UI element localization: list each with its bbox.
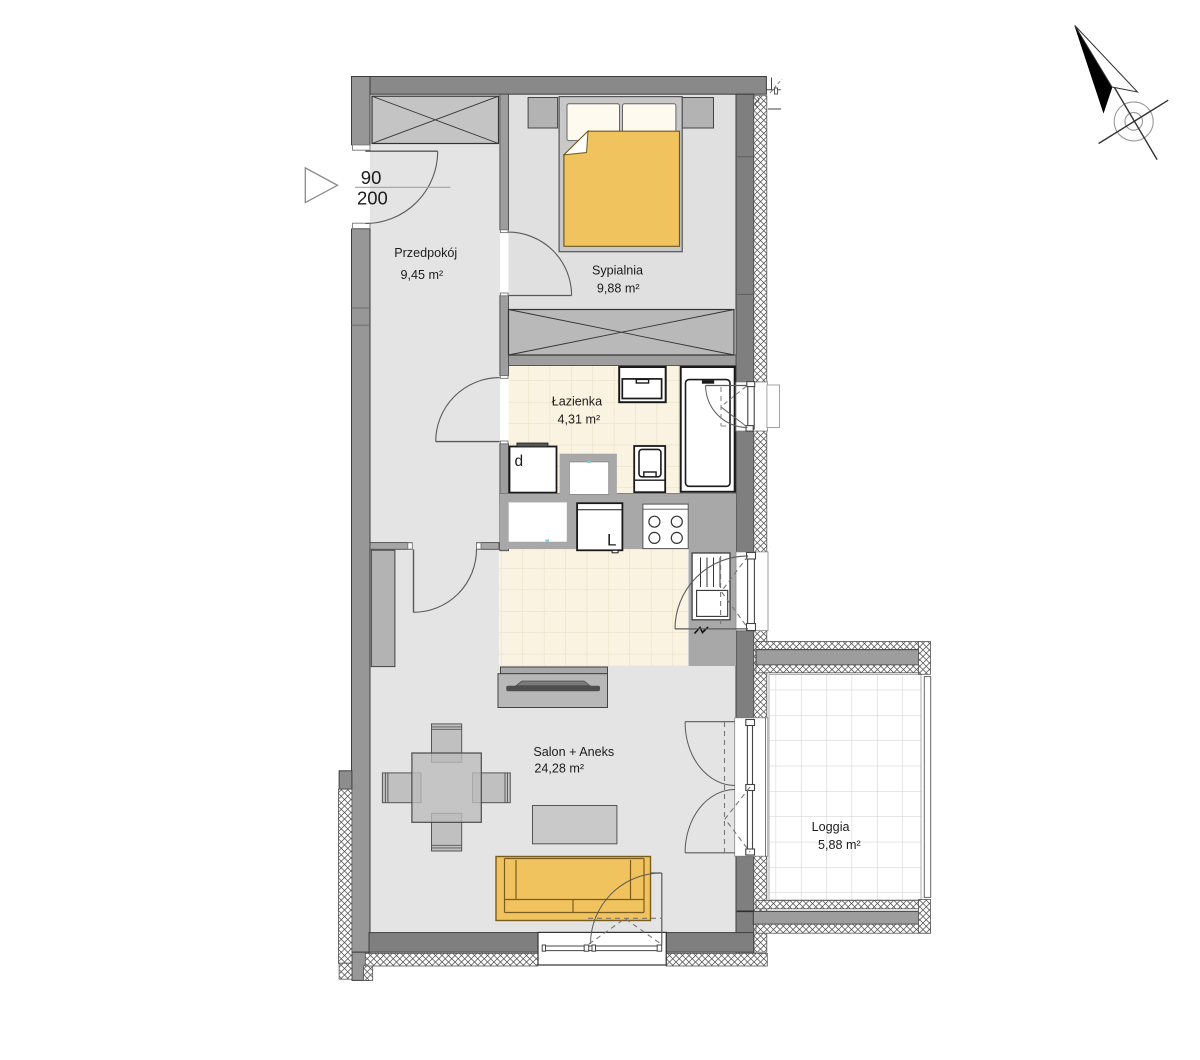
svg-text:5,88 m²: 5,88 m²: [818, 838, 861, 852]
svg-text:9,45 m²: 9,45 m²: [400, 268, 443, 282]
svg-text:9,88 m²: 9,88 m²: [597, 282, 640, 296]
svg-text:L: L: [607, 531, 616, 550]
svg-text:Loggia: Loggia: [812, 820, 850, 834]
svg-text:4,31 m²: 4,31 m²: [557, 413, 600, 427]
svg-text:200: 200: [357, 187, 388, 208]
svg-text:Łazienka: Łazienka: [552, 395, 602, 409]
svg-text:90: 90: [361, 167, 382, 188]
svg-text:24,28 m²: 24,28 m²: [534, 762, 584, 776]
svg-text:Przedpokój: Przedpokój: [394, 246, 457, 260]
svg-text:Salon + Aneks: Salon + Aneks: [533, 745, 614, 759]
svg-text:Sypialnia: Sypialnia: [592, 264, 643, 278]
svg-text:d: d: [515, 453, 524, 470]
